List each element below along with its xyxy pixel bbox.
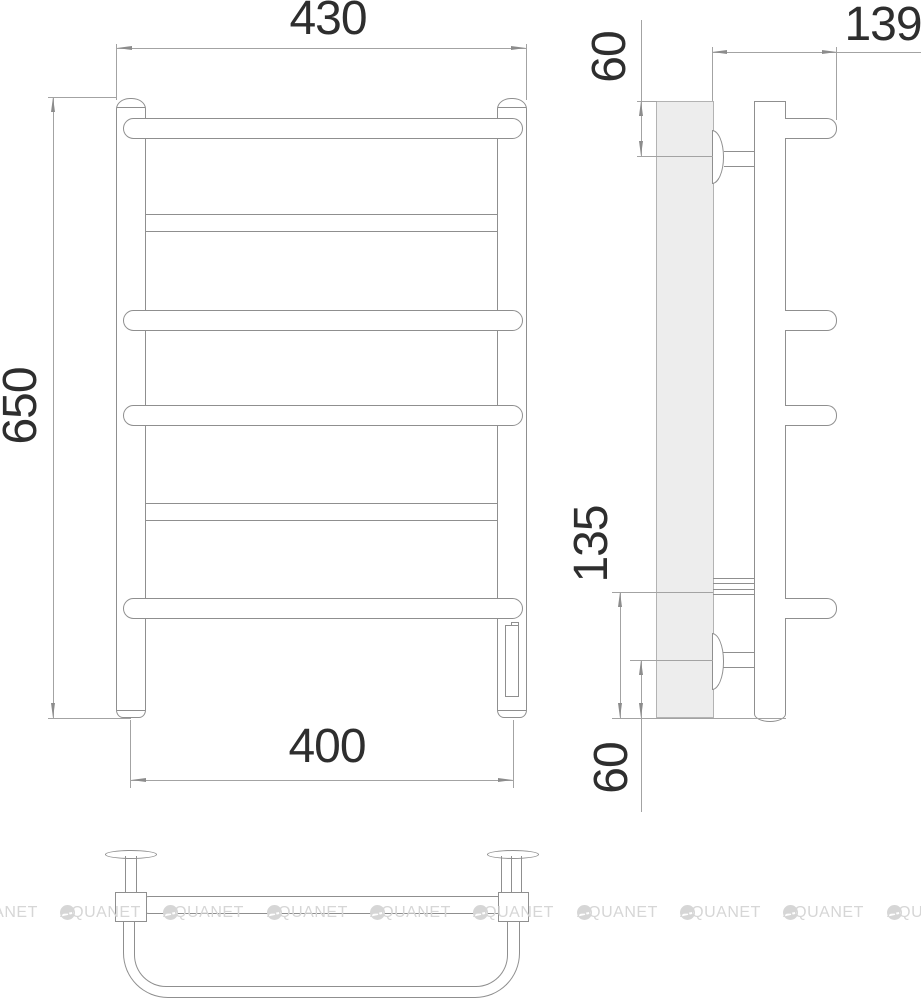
top-left-stem	[125, 856, 137, 894]
front-bar-3	[123, 310, 523, 331]
dim-139-arrow-left	[712, 50, 727, 54]
dim-430-ext-right	[526, 44, 527, 100]
dim-650-line	[53, 97, 54, 718]
dim-60top-ext-b	[637, 156, 713, 157]
dim-135-arrow-up	[618, 592, 622, 607]
dim-430-ext-left	[116, 44, 117, 100]
watermark-text: AQUANET	[783, 904, 864, 922]
front-right-post-foot-line	[498, 710, 526, 711]
front-left-post-cap-line	[117, 107, 145, 108]
dim-60bot-arrow-down	[639, 703, 643, 718]
top-view	[0, 830, 600, 1000]
side-bar-2	[785, 310, 837, 331]
side-post-foot	[754, 712, 786, 722]
dim-135-ext-top	[612, 592, 713, 593]
dim-430-arrow-right	[511, 46, 526, 50]
front-bar-4	[123, 405, 523, 426]
side-post	[754, 101, 786, 713]
dim-135-label: 135	[569, 474, 615, 614]
dim-400-arrow-left	[131, 778, 146, 782]
dim-400-line	[131, 780, 514, 781]
lower-boss-band-2	[713, 589, 755, 595]
watermark-text: AQUANET	[680, 904, 761, 922]
front-bar-1	[123, 118, 523, 139]
side-bar-1	[785, 118, 837, 139]
top-left-block	[115, 892, 147, 922]
front-bar-5-thin	[146, 503, 498, 521]
aquanet-logo-icon	[783, 905, 798, 920]
dim-60top-arrow-down	[639, 141, 643, 156]
towel-rail-technical-drawing: 430 650 400	[0, 0, 921, 1000]
dim-60bot-line	[641, 660, 642, 812]
dim-650-arrow-top	[51, 97, 55, 112]
front-bar-2-thin	[146, 214, 498, 232]
side-bottom-ext	[612, 718, 786, 719]
dim-60top-label: 60	[587, 0, 633, 127]
lower-bracket-stem	[722, 652, 755, 668]
front-right-post-cap-line	[498, 107, 526, 108]
dim-400-arrow-right	[498, 778, 513, 782]
dim-650-ext-bottom	[48, 718, 131, 719]
heating-element-housing-step	[511, 622, 519, 626]
dim-139-ext-left	[712, 47, 713, 101]
watermark-text: AQUANET	[887, 904, 921, 922]
lower-bracket-flange	[712, 633, 724, 690]
top-bar	[140, 896, 506, 914]
dim-139-label: 139	[813, 2, 921, 48]
dim-650-label: 650	[0, 336, 44, 476]
dim-430-label: 430	[258, 0, 398, 42]
dim-400-ext-right	[513, 720, 514, 788]
wall-section	[656, 101, 714, 718]
upper-bracket-flange	[712, 130, 724, 184]
dim-139-line	[712, 52, 921, 53]
top-right-block	[498, 892, 529, 922]
top-right-stem-center-line	[511, 856, 512, 894]
dim-60bot-label: 60	[589, 698, 635, 838]
side-bar-3	[785, 405, 837, 426]
dim-400-label: 400	[257, 724, 397, 770]
dim-60bot-arrow-up	[639, 660, 643, 675]
dim-139-arrow-right	[822, 50, 837, 54]
front-left-post-foot-line	[117, 710, 145, 711]
dim-139-ext-right	[836, 47, 837, 120]
lower-boss-band-1	[713, 578, 755, 584]
frame-tube-inner	[134, 922, 508, 987]
front-view: 430 650 400	[0, 0, 560, 800]
dim-430-line	[117, 48, 527, 49]
dim-60top-line	[641, 20, 642, 157]
dim-650-arrow-bottom	[51, 703, 55, 718]
dim-60top-arrow-up	[639, 101, 643, 116]
aquanet-logo-icon	[680, 905, 695, 920]
upper-bracket-stem	[724, 151, 755, 167]
heating-element-housing	[505, 625, 519, 697]
top-right-stem	[501, 856, 522, 894]
dim-650-ext-top	[48, 97, 117, 98]
side-bar-4	[785, 598, 837, 619]
side-view: 139 60 135 60	[560, 0, 921, 830]
dim-430-arrow-left	[117, 46, 132, 50]
front-bar-6	[123, 598, 523, 619]
aquanet-logo-icon	[887, 905, 902, 920]
